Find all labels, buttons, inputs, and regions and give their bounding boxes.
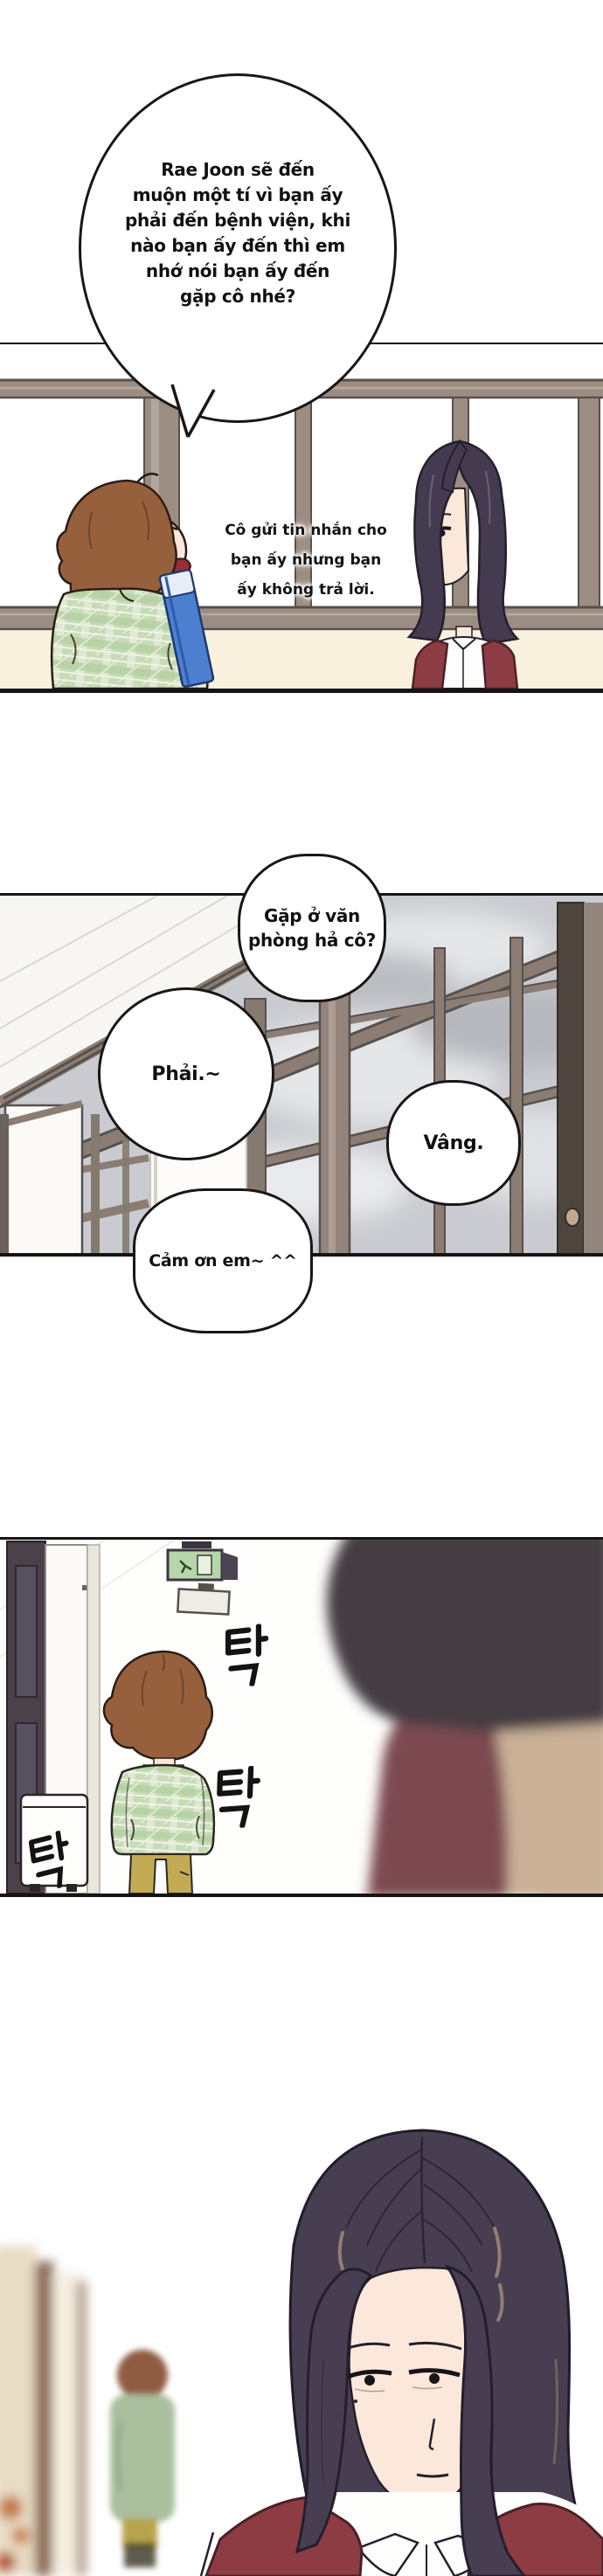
speech-bubble-teacher: Rae Joon sẽ đến muộn một tí vì bạn ấy ph…	[79, 73, 397, 423]
speech-bubble-reply-text: Phải.~	[151, 1063, 220, 1085]
panel4-scene	[0, 2097, 603, 2576]
floating-dialogue-caption: Cô gửi tin nhắn cho bạn ấy nhưng bạn ấy …	[210, 486, 402, 605]
blurred-hallway-left	[0, 2246, 86, 2576]
sfx-tak-icon	[220, 1623, 274, 1688]
panel3-hallway	[0, 1540, 603, 1894]
sfx-tak-text: 탁	[0, 0, 1, 1]
panel3-scene	[0, 1540, 603, 1894]
sfx-tak-icon	[213, 1765, 265, 1830]
speech-bubble-thanks: Cảm ơn em~ ^^	[133, 1188, 313, 1333]
beauty-mark	[354, 2399, 357, 2403]
speech-bubble-ack-text: Vâng.	[424, 1132, 484, 1154]
panel1-bottom-border	[0, 689, 603, 693]
speech-bubble-tail	[162, 381, 232, 444]
panel3-bottom-border	[0, 1894, 603, 1897]
floating-dialogue-text: Cô gửi tin nhắn cho bạn ấy nhưng bạn ấy …	[225, 522, 387, 599]
sfx-tak-text: 탁	[0, 0, 1, 1]
speech-bubble-question-text: Gặp ở văn phòng hả cô?	[248, 904, 376, 952]
speech-bubble-teacher-text: Rae Joon sẽ đến muộn một tí vì bạn ấy ph…	[125, 157, 350, 309]
comic-page: Rae Joon sẽ đến muộn một tí vì bạn ấy ph…	[0, 0, 603, 2576]
speech-bubble-thanks-text: Cảm ơn em~ ^^	[149, 1251, 297, 1271]
speech-bubble-reply: Phải.~	[98, 987, 274, 1160]
panel4-closeup	[0, 2097, 603, 2576]
speech-bubble-ack: Vâng.	[386, 1080, 521, 1206]
window-latch	[565, 1208, 579, 1226]
sfx-tak-text: 탁	[0, 0, 1, 1]
panel3-top-border	[0, 1537, 603, 1540]
speech-bubble-question: Gặp ở văn phòng hả cô?	[238, 854, 386, 1002]
